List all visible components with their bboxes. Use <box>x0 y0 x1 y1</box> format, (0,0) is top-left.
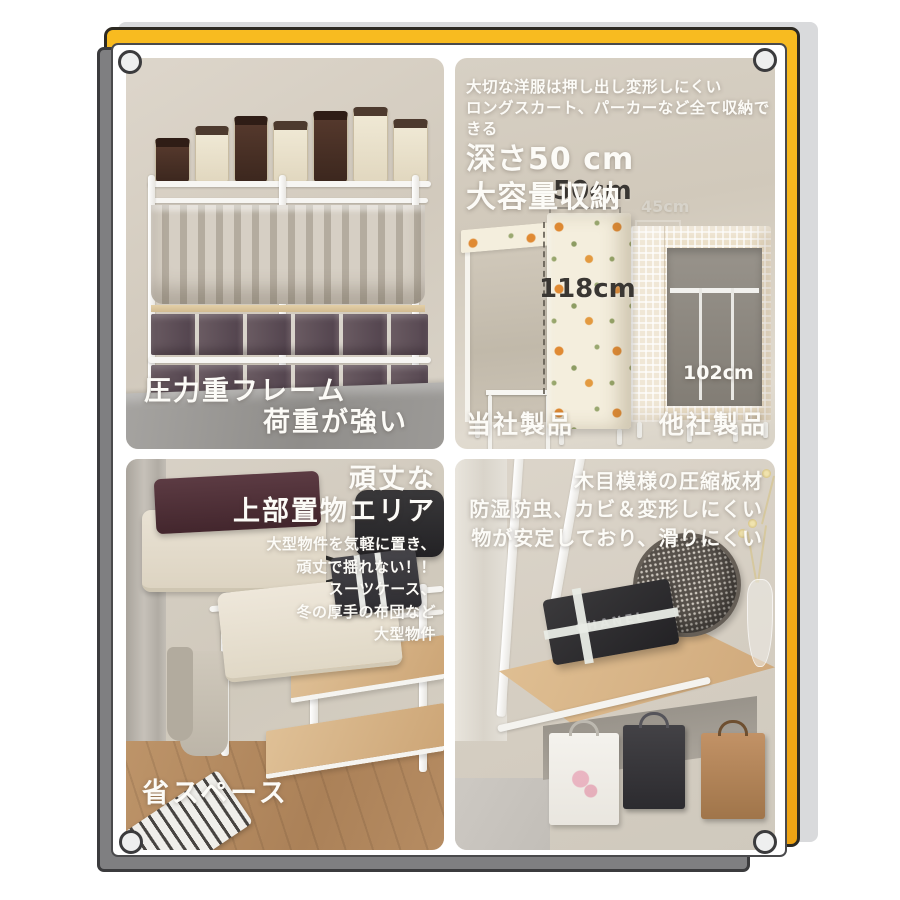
storage-case <box>313 111 348 183</box>
black-shopping-bag <box>623 725 685 809</box>
copy-big-line-2: 大容量収納 <box>466 181 775 216</box>
rack-shelf-bar <box>151 198 428 203</box>
theirs-side-face <box>631 226 665 422</box>
wardrobe-leg <box>617 429 622 445</box>
corner-hole-top-right <box>753 48 777 72</box>
photo-heavy-frame: 圧力重フレーム 荷重が強い <box>126 58 444 449</box>
main-white-card: 圧力重フレーム 荷重が強い 大切な洋服は押し出し変形しにくい ロングスカート、パ… <box>111 43 787 857</box>
desc-line: 頑丈で揺れない！！ <box>267 556 436 579</box>
copy-line-2: 防湿防虫、カビ＆変形しにくい <box>461 495 763 523</box>
hanging-rail <box>670 288 759 293</box>
white-shopping-bag <box>549 733 619 825</box>
bag-artwork <box>567 763 601 803</box>
theirs-height-label: 102cm <box>683 362 754 384</box>
storage-case <box>155 138 190 183</box>
storage-bins-row <box>151 314 428 355</box>
copy-line-3: 物が安定しており、滑りにくい <box>461 524 763 552</box>
ours-wardrobe-front-panel <box>547 213 631 429</box>
photo-wood-board: CHANEL 木目模様の圧縮板材 防湿防虫、カビ＆変形しにくい <box>455 459 775 850</box>
desc-line: スーツケース、 <box>267 578 436 601</box>
wood-beam <box>151 305 424 312</box>
ours-wardrobe-opening <box>465 238 547 422</box>
theirs-product-label: 他社製品 <box>659 405 767 441</box>
sturdy-area-title: 頑丈な 上部置物エリア <box>233 464 436 528</box>
photo-top-storage-area: 頑丈な 上部置物エリア 大型物件を気軽に置き、 頑丈で揺れない！！ スーツケース… <box>126 459 444 850</box>
dried-flower-bloom <box>762 469 771 478</box>
storage-case <box>234 116 268 183</box>
space-saving-label: 省スペース <box>142 771 289 810</box>
product-infographic-page: 圧力重フレーム 荷重が強い 大切な洋服は押し出し変形しにくい ロングスカート、パ… <box>0 0 900 900</box>
caption-line-2: 荷重が強い <box>263 400 408 439</box>
glass-vase <box>747 579 773 667</box>
desc-line: 大型物件 <box>267 623 436 646</box>
corner-hole-top-left <box>118 50 142 74</box>
sturdy-area-description: 大型物件を気軽に置き、 頑丈で揺れない！！ スーツケース、 冬の厚手の布団など … <box>267 533 436 646</box>
wardrobe-leg <box>637 422 642 438</box>
dried-flower-stem <box>761 476 775 525</box>
desc-line: 大型物件を気軽に置き、 <box>267 533 436 556</box>
rack-shelf-bar <box>148 181 431 187</box>
storage-case <box>393 119 428 183</box>
ribbon <box>544 608 679 640</box>
hanging-clothes <box>167 647 192 741</box>
corner-hole-bottom-left <box>119 830 143 854</box>
ours-height-label: 118cm <box>539 274 636 304</box>
storage-case <box>195 126 230 183</box>
copy-small-line-1: 大切な洋服は押し出し変形しにくい <box>466 77 775 98</box>
copy-small-line-2: ロングスカート、パーカーなど全て収納できる <box>466 98 775 140</box>
copy-big-line-1: 深さ50 cm <box>466 143 775 178</box>
wardrobe-comparison-scene: 50cm 118cm 45cm <box>455 176 775 449</box>
copy-line-1: 木目模様の圧縮板材 <box>461 467 763 495</box>
tile-floor <box>455 778 550 850</box>
panel-depth-comparison: 大切な洋服は押し出し変形しにくい ロングスカート、パーカーなど全て収納できる 深… <box>455 58 775 449</box>
corner-hole-bottom-right <box>753 830 777 854</box>
hanging-garment-covers <box>151 205 424 305</box>
ours-height-dashed-line <box>543 222 545 394</box>
ours-product-label: 当社製品 <box>466 405 574 441</box>
desc-line: 冬の厚手の布団など <box>267 601 436 624</box>
heavy-frame-caption: 圧力重フレーム 荷重が強い <box>126 355 444 449</box>
title-line-1: 頑丈な <box>233 464 436 496</box>
storage-case <box>353 107 388 183</box>
kraft-shopping-bag <box>701 733 765 819</box>
theirs-wardrobe <box>631 226 771 422</box>
wood-board-copy: 木目模様の圧縮板材 防湿防虫、カビ＆変形しにくい 物が安定しており、滑りにくい <box>461 467 763 552</box>
title-line-2: 上部置物エリア <box>233 496 436 528</box>
storage-cases-row <box>155 97 429 183</box>
storage-case <box>273 121 308 183</box>
depth-copy-block: 大切な洋服は押し出し変形しにくい ロングスカート、パーカーなど全て収納できる 深… <box>466 77 775 215</box>
